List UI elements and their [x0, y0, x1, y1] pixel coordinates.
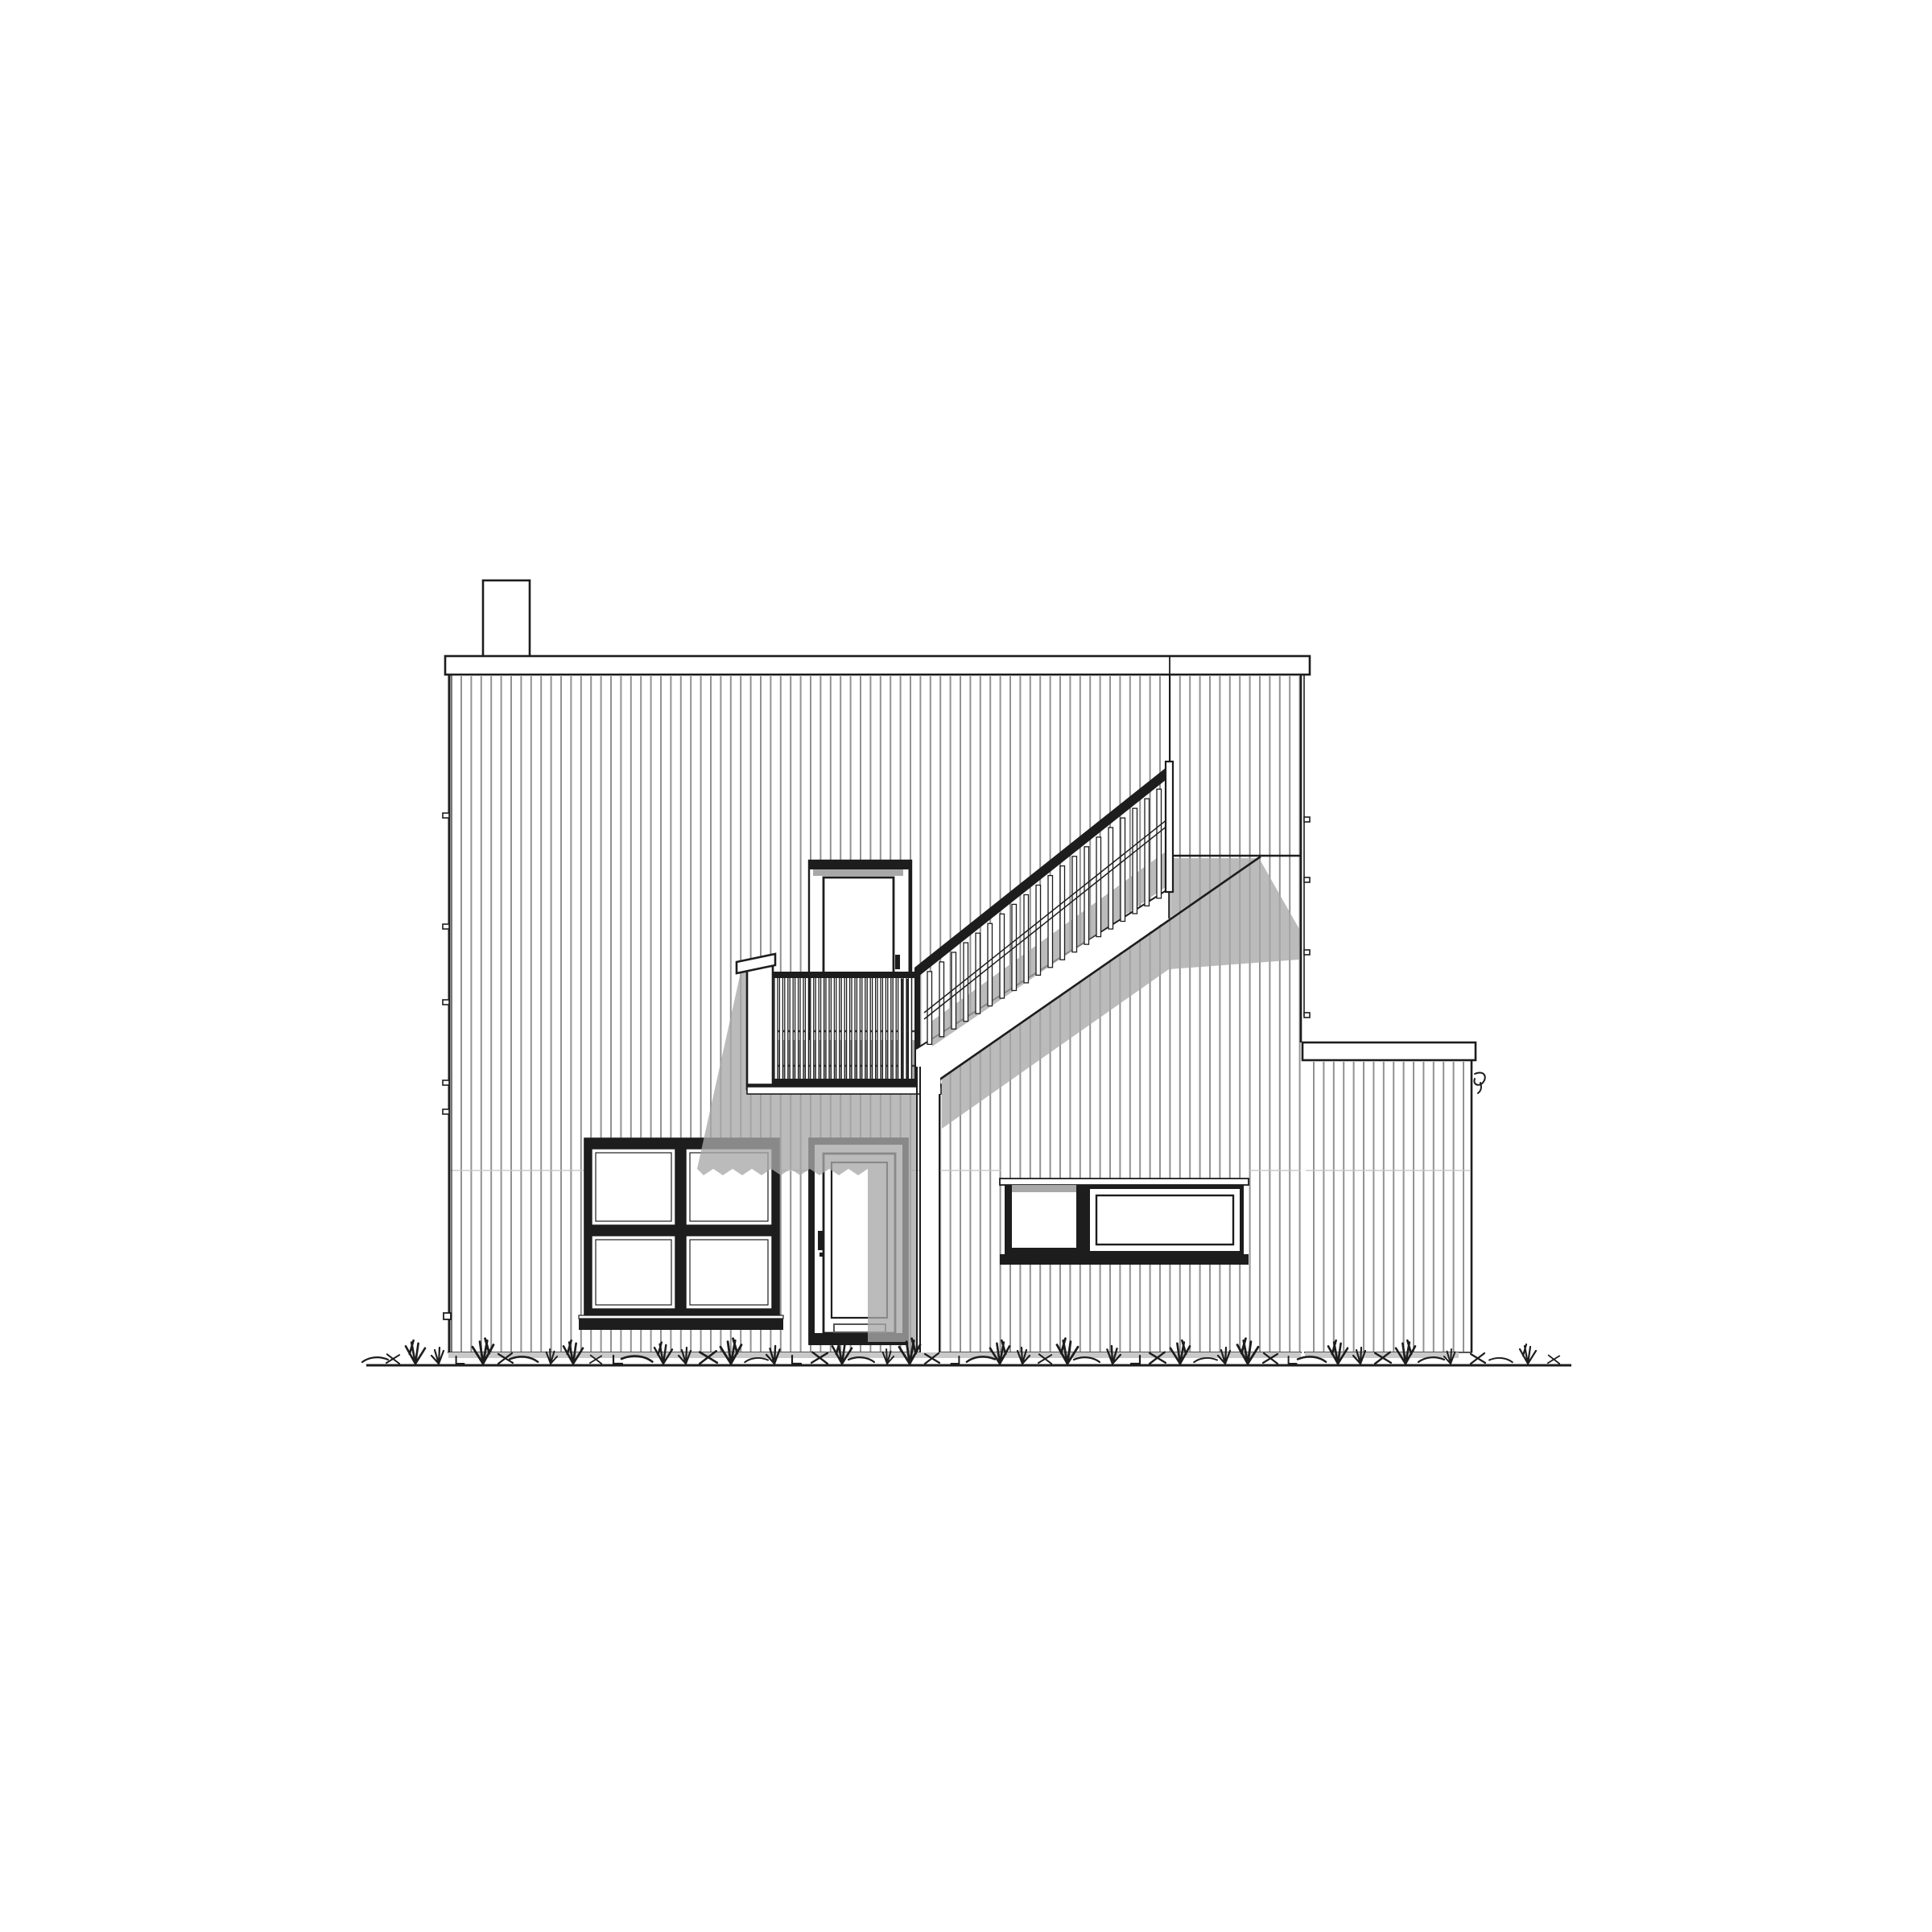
elevation-drawing-canvas: [0, 0, 1932, 1932]
support-post: [917, 1067, 940, 1355]
balcony: [737, 954, 941, 1094]
house-elevation-svg: [0, 0, 1932, 1932]
